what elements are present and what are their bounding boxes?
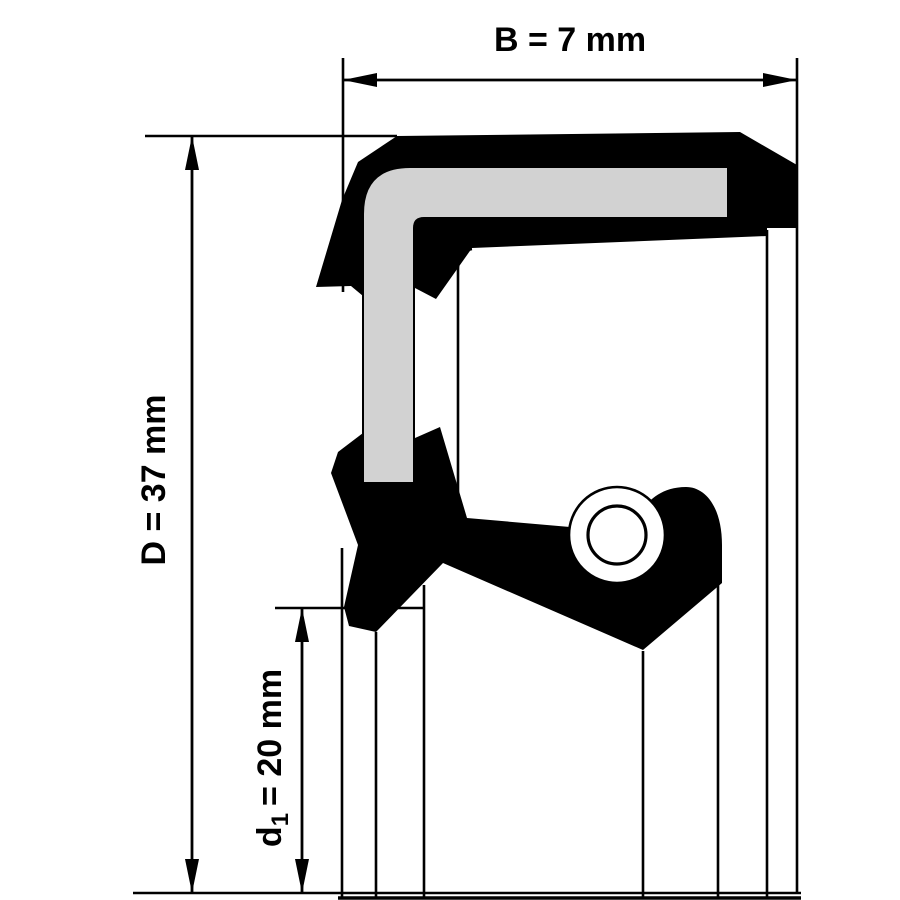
d1-symbol: d — [251, 826, 289, 847]
dimension-b-label: B = 7 mm — [494, 21, 646, 59]
dimension-d1-label: d1= 20 mm — [251, 669, 294, 847]
arrowhead-down-icon — [185, 859, 199, 893]
d1-subscript: 1 — [267, 813, 294, 826]
bore-inner-corner-line — [458, 249, 472, 505]
seal-cross-section-svg: B = 7 mm D = 37 mm d1= 20 mm — [0, 0, 900, 900]
dimension-d1: d1= 20 mm — [251, 608, 309, 893]
seal-technical-drawing: B = 7 mm D = 37 mm d1= 20 mm — [0, 0, 900, 900]
arrowhead-right-icon — [763, 73, 797, 87]
arrowhead-down-icon — [295, 859, 309, 893]
d1-value-text: = 20 mm — [251, 669, 289, 806]
arrowhead-left-icon — [343, 73, 377, 87]
arrowhead-up-icon — [295, 608, 309, 642]
garter-spring-inner-circle — [588, 506, 646, 564]
dimension-d-label: D = 37 mm — [135, 394, 173, 565]
dimension-d: D = 37 mm — [135, 136, 199, 893]
arrowhead-up-icon — [185, 136, 199, 170]
metal-insert — [363, 167, 728, 483]
dimension-b: B = 7 mm — [343, 21, 797, 87]
